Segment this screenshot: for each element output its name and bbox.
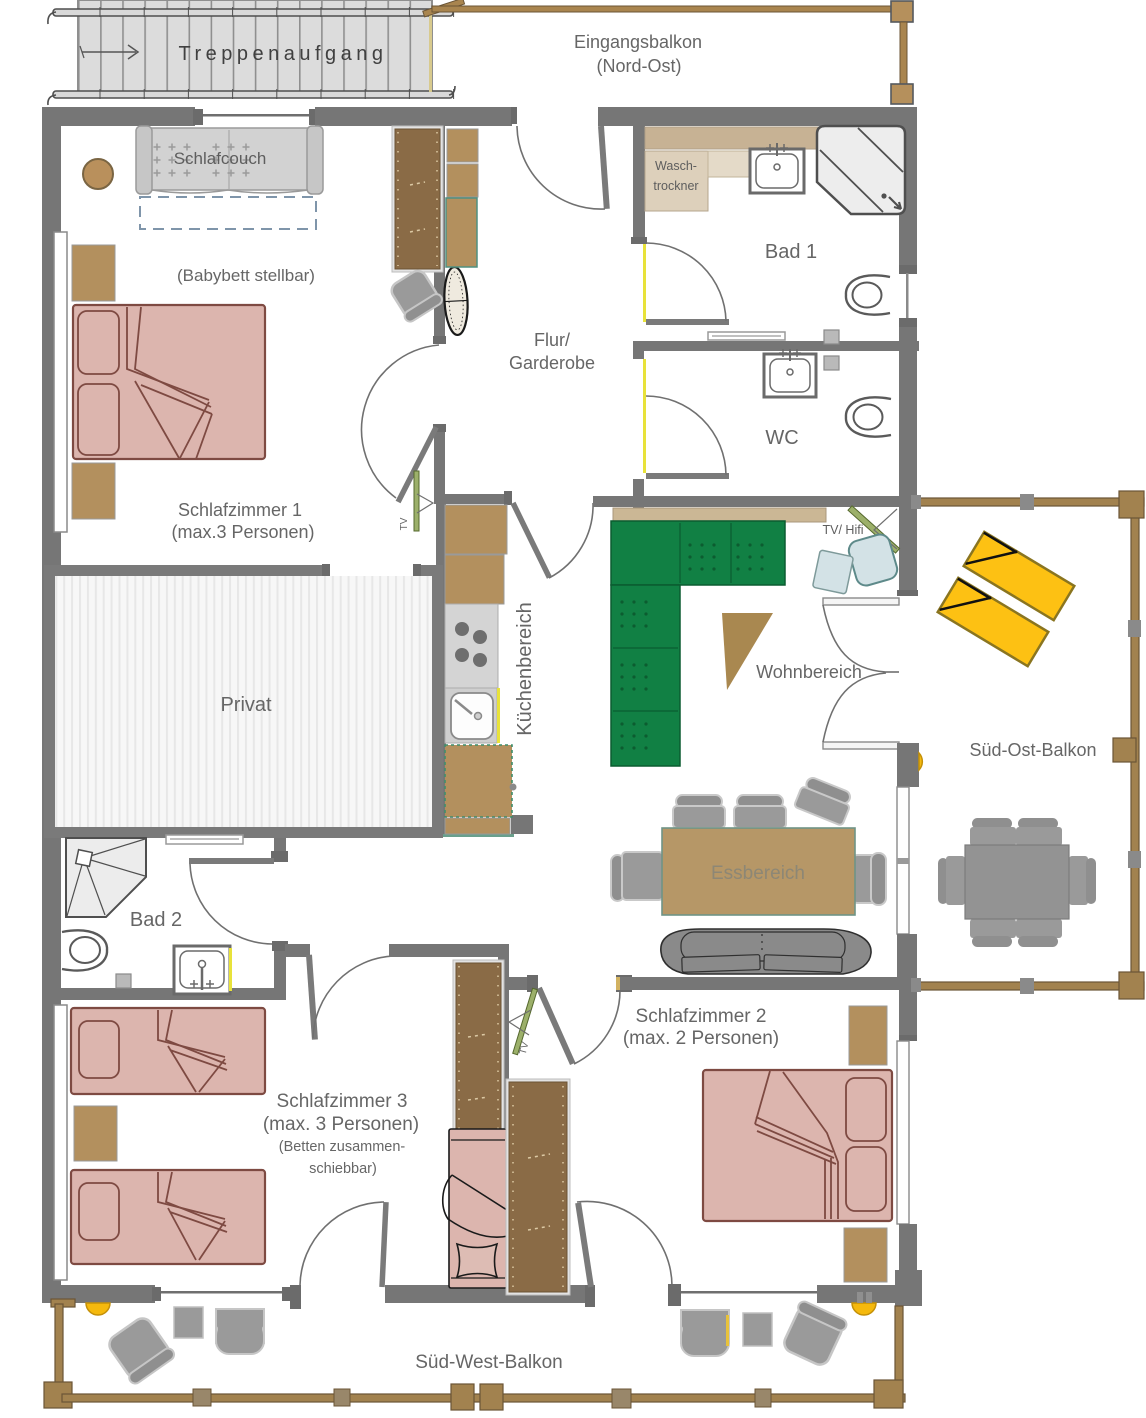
svg-text:Wasch-: Wasch- [655, 159, 697, 173]
svg-text:(Betten zusammen-: (Betten zusammen- [279, 1139, 406, 1155]
svg-text:(Babybett stellbar): (Babybett stellbar) [177, 266, 315, 285]
svg-text:Süd-Ost-Balkon: Süd-Ost-Balkon [969, 740, 1096, 760]
svg-text:Schlafzimmer 2: Schlafzimmer 2 [636, 1006, 767, 1027]
svg-text:WC: WC [765, 427, 798, 449]
svg-text:trockner: trockner [653, 179, 698, 193]
svg-text:(max.3 Personen): (max.3 Personen) [171, 522, 314, 542]
svg-text:Wohnbereich: Wohnbereich [756, 662, 862, 682]
svg-text:Schlafcouch: Schlafcouch [174, 149, 267, 168]
svg-text:(max. 3 Personen): (max. 3 Personen) [263, 1114, 419, 1135]
svg-text:Bad 1: Bad 1 [765, 241, 817, 263]
svg-text:Flur/: Flur/ [534, 330, 570, 350]
svg-text:TV/ Hifi: TV/ Hifi [823, 523, 864, 537]
svg-text:Garderobe: Garderobe [509, 353, 595, 373]
svg-text:Schlafzimmer 1: Schlafzimmer 1 [178, 500, 302, 520]
svg-text:(max. 2 Personen): (max. 2 Personen) [623, 1028, 779, 1049]
svg-text:schiebbar): schiebbar) [309, 1161, 377, 1177]
svg-text:Süd-West-Balkon: Süd-West-Balkon [415, 1352, 563, 1373]
svg-text:Treppenaufgang: Treppenaufgang [178, 43, 387, 65]
svg-text:TV: TV [399, 517, 410, 530]
svg-text:(Nord-Ost): (Nord-Ost) [597, 56, 682, 76]
svg-text:Privat: Privat [220, 694, 272, 716]
svg-text:Schlafzimmer 3: Schlafzimmer 3 [277, 1091, 408, 1112]
svg-text:Küchenbereich: Küchenbereich [514, 602, 536, 735]
svg-text:Eingangsbalkon: Eingangsbalkon [574, 32, 702, 52]
svg-text:Bad 2: Bad 2 [130, 909, 182, 931]
svg-text:Essbereich: Essbereich [711, 863, 805, 884]
